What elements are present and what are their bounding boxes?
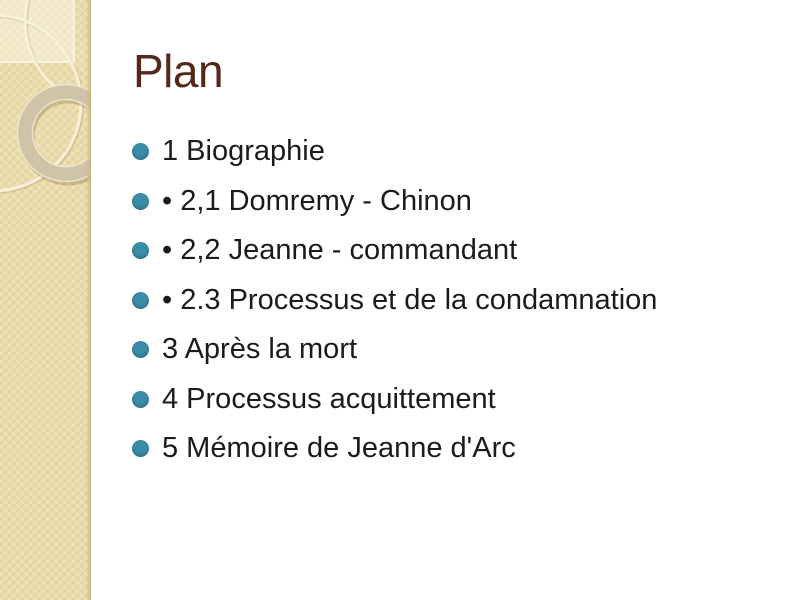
bullet-text: • 2,1 Domremy - Chinon bbox=[162, 185, 472, 218]
bullet-dot-icon bbox=[132, 440, 149, 457]
bullet-dot-icon bbox=[132, 143, 149, 160]
bullet-item: • 2,2 Jeanne - commandant bbox=[132, 226, 657, 276]
bullet-item: 5 Mémoire de Jeanne d'Arc bbox=[132, 424, 657, 474]
bullet-text: 1 Biographie bbox=[162, 135, 325, 168]
bullet-item: 4 Processus acquittement bbox=[132, 375, 657, 425]
bullet-dot-icon bbox=[132, 242, 149, 259]
bullet-dot-icon bbox=[132, 341, 149, 358]
bullet-dot-icon bbox=[132, 193, 149, 210]
bullet-item: • 2,1 Domremy - Chinon bbox=[132, 177, 657, 227]
bullet-list: 1 Biographie • 2,1 Domremy - Chinon • 2,… bbox=[132, 127, 657, 474]
bullet-text: 3 Après la mort bbox=[162, 333, 357, 366]
bullet-dot-icon bbox=[132, 292, 149, 309]
bullet-text: • 2,2 Jeanne - commandant bbox=[162, 234, 517, 267]
bullet-text: 5 Mémoire de Jeanne d'Arc bbox=[162, 432, 516, 465]
bullet-dot-icon bbox=[132, 391, 149, 408]
square-ornament-icon bbox=[0, 0, 74, 62]
bullet-text: 4 Processus acquittement bbox=[162, 383, 496, 416]
slide-canvas: Plan 1 Biographie • 2,1 Domremy - Chinon… bbox=[0, 0, 800, 600]
circle-ornaments-icon bbox=[0, 0, 91, 600]
slide-title: Plan bbox=[133, 48, 223, 94]
sidebar-ornament-strip bbox=[0, 0, 91, 600]
bullet-item: 1 Biographie bbox=[132, 127, 657, 177]
bullet-item: • 2.3 Processus et de la condamnation bbox=[132, 276, 657, 326]
bullet-item: 3 Après la mort bbox=[132, 325, 657, 375]
bullet-text: • 2.3 Processus et de la condamnation bbox=[162, 284, 657, 317]
